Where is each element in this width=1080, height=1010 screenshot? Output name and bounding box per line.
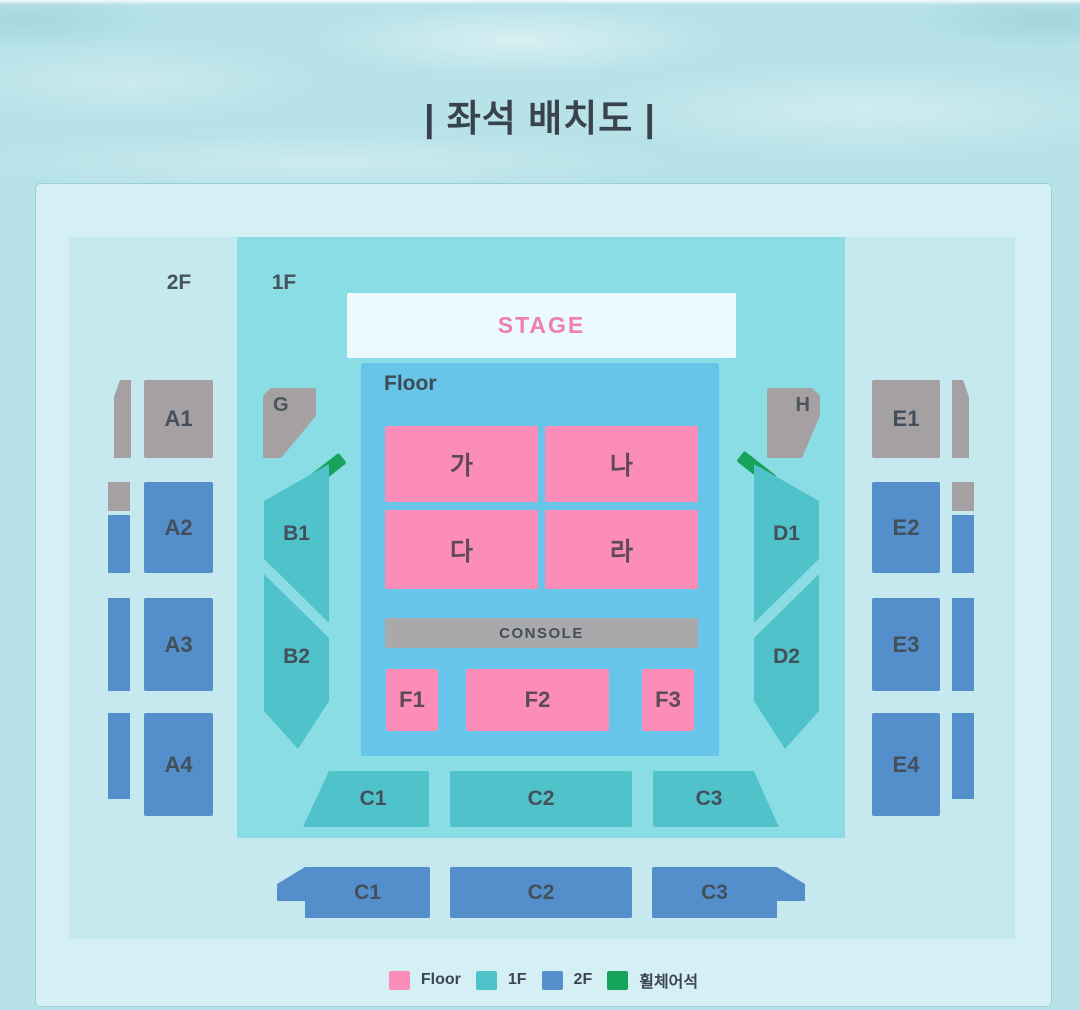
page-title: | 좌석 배치도 | [0,88,1080,142]
section-a2-wing [108,515,130,573]
section-e1: E1 [872,380,940,458]
console: CONSOLE [385,618,698,648]
section-e1-wing [952,380,969,458]
seat-map: 2F 1F STAGE Floor 가 나 다 라 CONSOLE F1 F2 … [35,183,1052,1007]
section-e3: E3 [872,598,940,691]
section-f1: F1 [386,669,438,731]
section-a1: A1 [144,380,213,458]
section-a2: A2 [144,482,213,573]
section-a4-wing [108,713,130,799]
legend-item-floor: Floor [389,971,461,990]
section-ga: 가 [385,426,538,502]
legend-label-floor: Floor [421,971,461,989]
section-a4: A4 [144,713,213,816]
2f-color-swatch [542,971,563,990]
section-a2-wing-gray [108,482,130,511]
section-c2-2f: C2 [450,867,632,918]
legend-item-2f: 2F [542,971,593,990]
legend-item-1f: 1F [476,971,527,990]
section-c2-1f: C2 [450,771,632,827]
section-na: 나 [545,426,698,502]
wheelchair-color-swatch [607,971,628,990]
section-a3: A3 [144,598,213,691]
floor-zone: Floor 가 나 다 라 CONSOLE F1 F2 F3 [361,363,719,756]
section-a1-wing [114,380,131,458]
1f-color-swatch [476,971,497,990]
section-e2-wing-gray [952,482,974,511]
label-1f: 1F [262,271,306,295]
section-e3-wing [952,598,974,691]
legend-label-wheelchair: 휠체어석 [639,968,698,992]
label-2f: 2F [157,271,201,295]
section-e4: E4 [872,713,940,816]
section-e2: E2 [872,482,940,573]
stage: STAGE [347,293,736,358]
section-da: 다 [385,510,538,589]
section-e2-wing [952,515,974,573]
legend-label-2f: 2F [574,971,593,989]
section-ra: 라 [545,510,698,589]
section-a3-wing [108,598,130,691]
legend: Floor 1F 2F 휠체어석 [36,969,1051,991]
section-e4-wing [952,713,974,799]
section-f3: F3 [642,669,694,731]
floor-zone-label: Floor [384,372,437,396]
legend-item-wheelchair: 휠체어석 [607,968,698,992]
legend-label-1f: 1F [508,971,527,989]
section-f2: F2 [466,669,609,731]
floor-color-swatch [389,971,410,990]
